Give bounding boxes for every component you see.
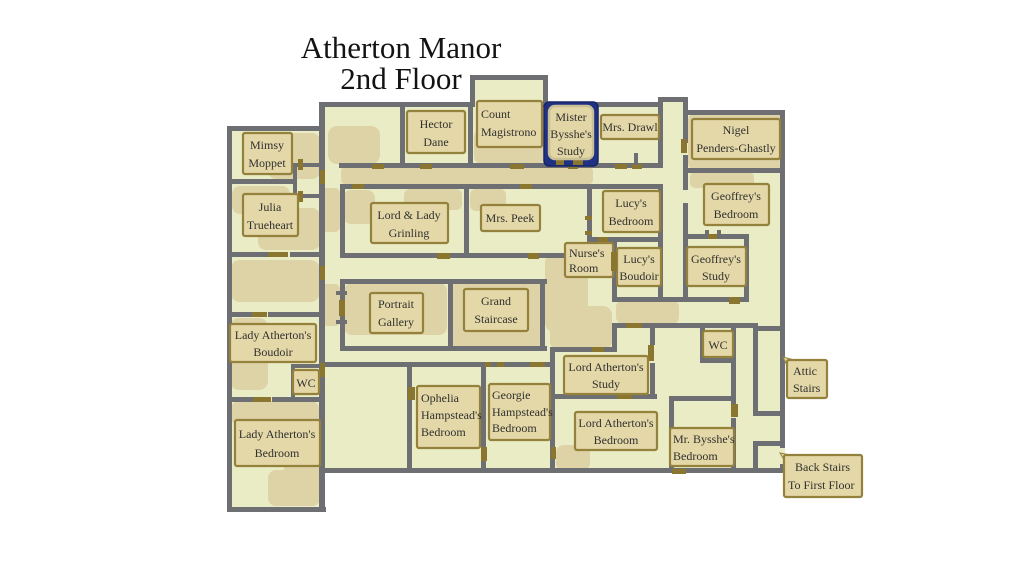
svg-text:Stairs: Stairs xyxy=(793,381,821,395)
svg-text:Georgie: Georgie xyxy=(492,388,530,402)
svg-text:Lucy's: Lucy's xyxy=(623,252,655,266)
svg-text:2nd Floor: 2nd Floor xyxy=(340,61,462,96)
svg-text:Ophelia: Ophelia xyxy=(421,391,460,405)
svg-text:Attic: Attic xyxy=(793,364,817,378)
svg-text:Count: Count xyxy=(481,107,511,121)
svg-text:Julia: Julia xyxy=(259,200,282,214)
svg-text:To First Floor: To First Floor xyxy=(788,478,855,492)
svg-text:Bedroom: Bedroom xyxy=(594,433,639,447)
svg-text:Back Stairs: Back Stairs xyxy=(795,460,850,474)
svg-text:Bedroom: Bedroom xyxy=(492,421,537,435)
svg-text:Bedroom: Bedroom xyxy=(421,425,466,439)
svg-text:Hampstead's: Hampstead's xyxy=(421,408,482,422)
svg-text:Lady Atherton's: Lady Atherton's xyxy=(235,328,312,342)
svg-text:Study: Study xyxy=(557,144,585,158)
svg-text:Mister: Mister xyxy=(555,110,586,124)
svg-text:Study: Study xyxy=(702,269,730,283)
svg-text:Lord Atherton's: Lord Atherton's xyxy=(578,416,653,430)
svg-text:Gallery: Gallery xyxy=(378,315,414,329)
svg-text:Nurse's: Nurse's xyxy=(569,246,605,260)
svg-text:Mrs. Peek: Mrs. Peek xyxy=(486,211,535,225)
svg-text:Bedroom: Bedroom xyxy=(255,446,300,460)
svg-text:Trueheart: Trueheart xyxy=(247,218,294,232)
svg-text:Hampstead's: Hampstead's xyxy=(492,405,553,419)
svg-text:Lucy's: Lucy's xyxy=(615,196,647,210)
svg-text:Atherton Manor: Atherton Manor xyxy=(301,30,502,65)
svg-text:Room: Room xyxy=(569,261,599,275)
svg-text:Bedroom: Bedroom xyxy=(609,214,654,228)
svg-text:Geoffrey's: Geoffrey's xyxy=(691,252,741,266)
svg-text:WC: WC xyxy=(708,338,727,352)
svg-text:Grinling: Grinling xyxy=(389,226,430,240)
svg-text:Lord & Lady: Lord & Lady xyxy=(377,208,440,222)
svg-text:Portrait: Portrait xyxy=(378,297,415,311)
svg-text:Boudoir: Boudoir xyxy=(253,345,292,359)
svg-text:Mr. Bysshe's: Mr. Bysshe's xyxy=(673,432,735,446)
svg-text:Study: Study xyxy=(592,377,620,391)
svg-text:Hector: Hector xyxy=(420,117,453,131)
svg-text:Bedroom: Bedroom xyxy=(673,449,718,463)
svg-text:Geoffrey's: Geoffrey's xyxy=(711,189,761,203)
svg-text:Penders-Ghastly: Penders-Ghastly xyxy=(696,141,775,155)
svg-text:Staircase: Staircase xyxy=(474,312,517,326)
svg-text:Boudoir: Boudoir xyxy=(619,269,658,283)
svg-text:Nigel: Nigel xyxy=(723,123,750,137)
svg-text:Lord Atherton's: Lord Atherton's xyxy=(568,360,643,374)
svg-text:Mimsy: Mimsy xyxy=(250,138,284,152)
svg-text:Lady Atherton's: Lady Atherton's xyxy=(239,427,316,441)
svg-text:Magistrono: Magistrono xyxy=(481,125,536,139)
svg-text:WC: WC xyxy=(296,376,315,390)
svg-text:Dane: Dane xyxy=(423,135,448,149)
svg-text:Bysshe's: Bysshe's xyxy=(550,127,592,141)
svg-text:Mrs. Drawl: Mrs. Drawl xyxy=(602,120,658,134)
svg-text:Grand: Grand xyxy=(481,294,511,308)
svg-text:Moppet: Moppet xyxy=(248,156,286,170)
svg-text:Bedroom: Bedroom xyxy=(714,207,759,221)
